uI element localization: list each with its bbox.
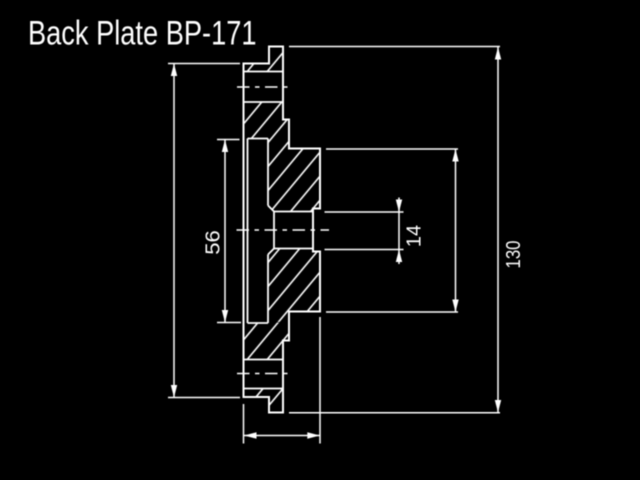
svg-text:Back Plate BP-171: Back Plate BP-171	[28, 14, 257, 52]
svg-text:130: 130	[503, 241, 525, 269]
svg-text:56: 56	[203, 230, 225, 255]
svg-text:14: 14	[404, 225, 426, 247]
